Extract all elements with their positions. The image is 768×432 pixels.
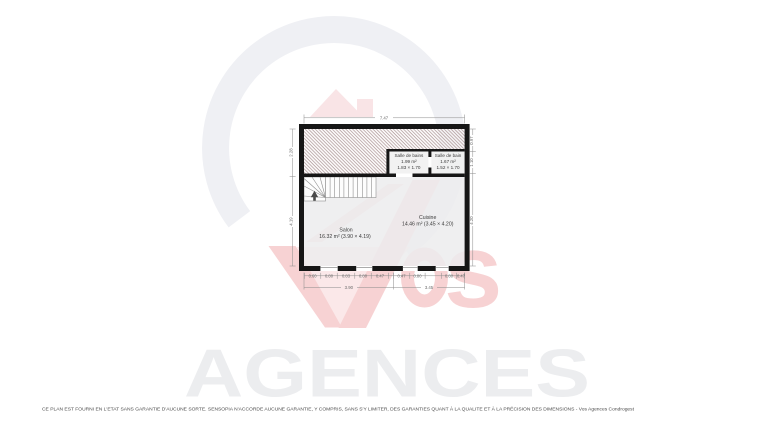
svg-text:Salon: Salon xyxy=(339,228,352,234)
svg-text:0.80: 0.80 xyxy=(359,273,368,278)
svg-text:16.32 m² (3.90 × 4.19): 16.32 m² (3.90 × 4.19) xyxy=(319,234,371,240)
svg-text:1.67 m²: 1.67 m² xyxy=(440,159,456,164)
svg-text:0.47: 0.47 xyxy=(457,273,466,278)
svg-text:0.60: 0.60 xyxy=(309,273,318,278)
svg-text:4.19: 4.19 xyxy=(289,217,294,226)
svg-text:7.47: 7.47 xyxy=(380,115,389,120)
svg-text:0.80: 0.80 xyxy=(414,273,423,278)
svg-text:4.20: 4.20 xyxy=(469,216,474,225)
svg-text:3.45: 3.45 xyxy=(425,285,434,290)
svg-text:0.80: 0.80 xyxy=(325,273,334,278)
svg-text:1.10: 1.10 xyxy=(469,158,474,167)
svg-text:1.52 × 1.70: 1.52 × 1.70 xyxy=(436,165,460,170)
svg-text:Cuisine: Cuisine xyxy=(419,215,436,221)
svg-text:0.47: 0.47 xyxy=(398,273,407,278)
svg-text:CE PLAN EST FOURNI EN L'ETAT S: CE PLAN EST FOURNI EN L'ETAT SANS GARANT… xyxy=(42,406,635,412)
svg-text:2.28: 2.28 xyxy=(289,148,294,157)
svg-text:1.83 × 1.70: 1.83 × 1.70 xyxy=(397,165,421,170)
svg-text:3.90: 3.90 xyxy=(345,285,354,290)
svg-text:Salle de bains: Salle de bains xyxy=(394,153,424,158)
svg-text:0.83: 0.83 xyxy=(342,273,351,278)
svg-text:AGENCES: AGENCES xyxy=(184,336,590,412)
svg-text:Salle de bain: Salle de bain xyxy=(435,153,462,158)
svg-text:0.97: 0.97 xyxy=(469,136,474,145)
svg-text:1.99 m²: 1.99 m² xyxy=(401,159,417,164)
svg-text:0.47: 0.47 xyxy=(376,273,385,278)
svg-text:0.80: 0.80 xyxy=(445,273,454,278)
svg-text:14.46 m² (3.45 × 4.20): 14.46 m² (3.45 × 4.20) xyxy=(402,222,454,228)
